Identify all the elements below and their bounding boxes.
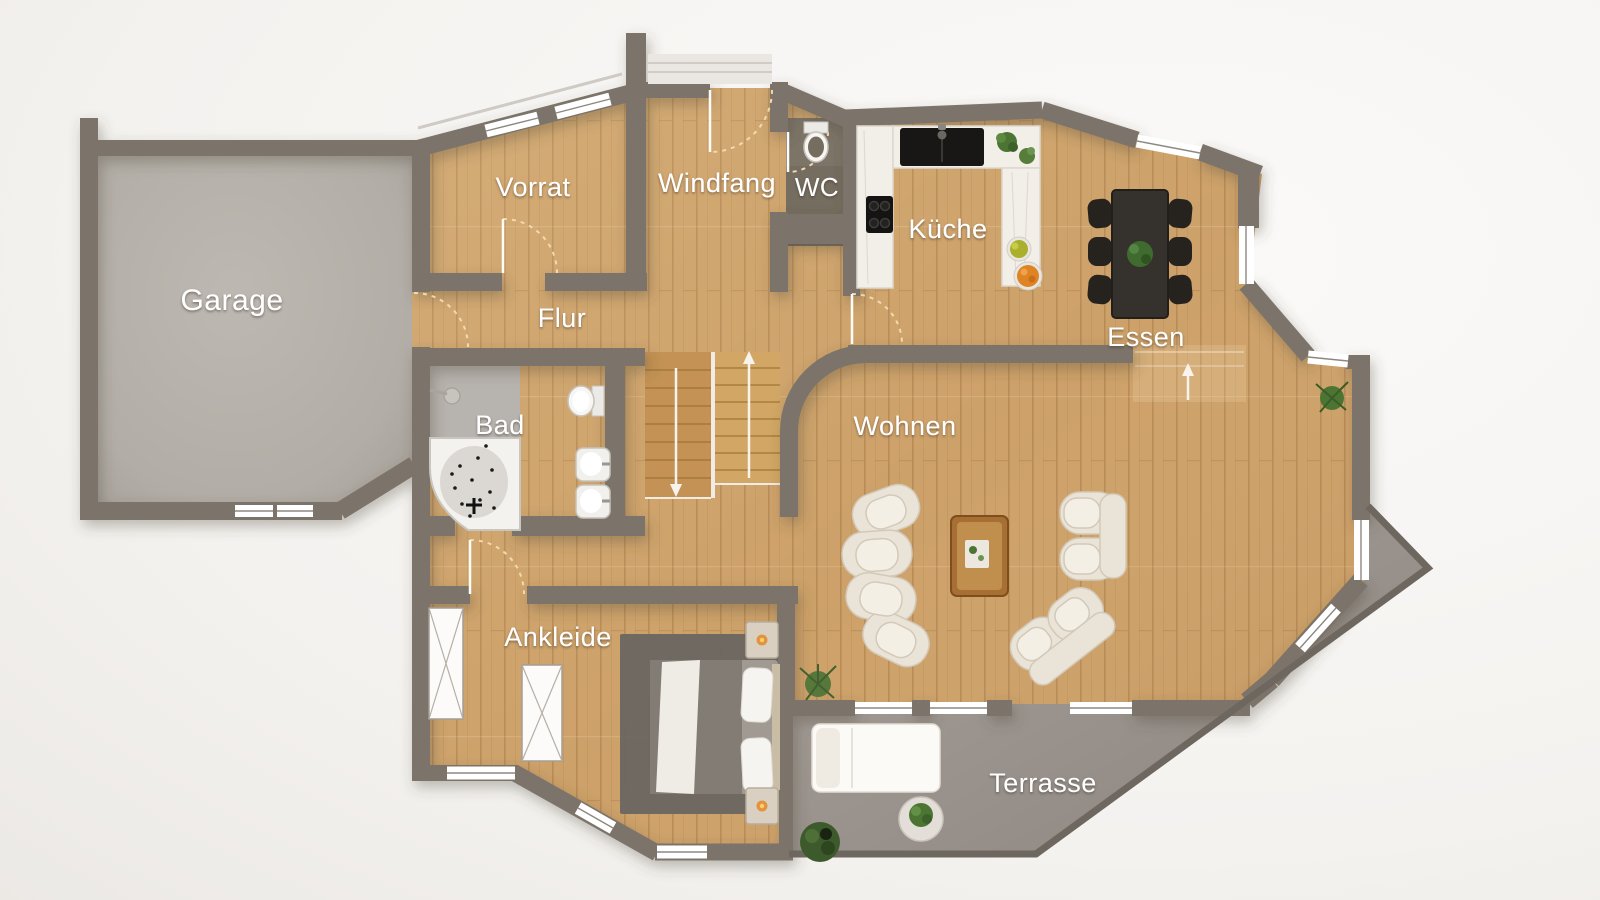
floor-plan-canvas: Garage Vorrat Windfang WC Küche Essen Fl… bbox=[0, 0, 1600, 900]
stairs-flight-up bbox=[715, 352, 780, 484]
wardrobe-2 bbox=[522, 665, 562, 761]
label-windfang: Windfang bbox=[658, 168, 776, 198]
lounger bbox=[812, 724, 940, 792]
label-terrasse: Terrasse bbox=[989, 768, 1097, 798]
label-ankleide: Ankleide bbox=[504, 622, 612, 652]
lemon-bowl bbox=[1007, 237, 1031, 261]
bed bbox=[650, 660, 780, 794]
essen-corner-wall bbox=[1238, 166, 1259, 228]
garage-floor bbox=[90, 148, 412, 515]
wohnen-east-wall bbox=[1352, 358, 1370, 520]
stairs-flight-down bbox=[645, 352, 711, 498]
bad-toilet bbox=[568, 386, 604, 416]
nightstand-top bbox=[746, 622, 778, 658]
wc-bottom-wall bbox=[770, 214, 850, 244]
kitchen-sink bbox=[900, 124, 984, 166]
wohnen-top-wall bbox=[848, 345, 1133, 363]
bad-sink-1 bbox=[576, 448, 610, 481]
terrace-table bbox=[899, 797, 943, 841]
ankleide-top-wall-left bbox=[412, 586, 470, 604]
label-vorrat: Vorrat bbox=[495, 172, 570, 202]
wardrobe-1 bbox=[429, 608, 463, 719]
west-wall-lower bbox=[412, 347, 430, 775]
bad-sink-2 bbox=[576, 485, 610, 518]
garage-wall-left bbox=[80, 118, 98, 520]
table-plant bbox=[1127, 241, 1153, 267]
entry-wall-left bbox=[646, 82, 710, 98]
label-kueche: Küche bbox=[908, 214, 987, 244]
windfang-west-wall bbox=[626, 33, 646, 285]
label-flur: Flur bbox=[538, 303, 587, 333]
coffee-table bbox=[951, 516, 1008, 596]
stairs-divider bbox=[711, 352, 715, 498]
terrasse-west-wall bbox=[779, 706, 793, 858]
bad-top-wall bbox=[412, 348, 645, 366]
terrace-bush bbox=[800, 822, 840, 862]
west-wall-upper bbox=[412, 140, 430, 292]
label-garage: Garage bbox=[180, 284, 283, 317]
cooktop bbox=[866, 196, 893, 233]
kueche-top-wall bbox=[845, 110, 1042, 118]
label-essen: Essen bbox=[1107, 322, 1185, 352]
label-bad: Bad bbox=[475, 410, 525, 440]
ankleide-top-wall-right bbox=[527, 586, 798, 604]
staircase bbox=[645, 352, 780, 498]
dining-area bbox=[1087, 190, 1194, 318]
floor-plan-page: Garage Vorrat Windfang WC Küche Essen Fl… bbox=[0, 0, 1600, 900]
nightstand-bottom bbox=[746, 788, 778, 824]
label-wohnen: Wohnen bbox=[853, 411, 956, 441]
entry-steps bbox=[648, 54, 772, 84]
orange-bowl bbox=[1014, 262, 1042, 290]
garage-wall-top bbox=[80, 140, 414, 156]
label-wc: WC bbox=[795, 172, 839, 202]
wc-toilet bbox=[804, 122, 828, 162]
